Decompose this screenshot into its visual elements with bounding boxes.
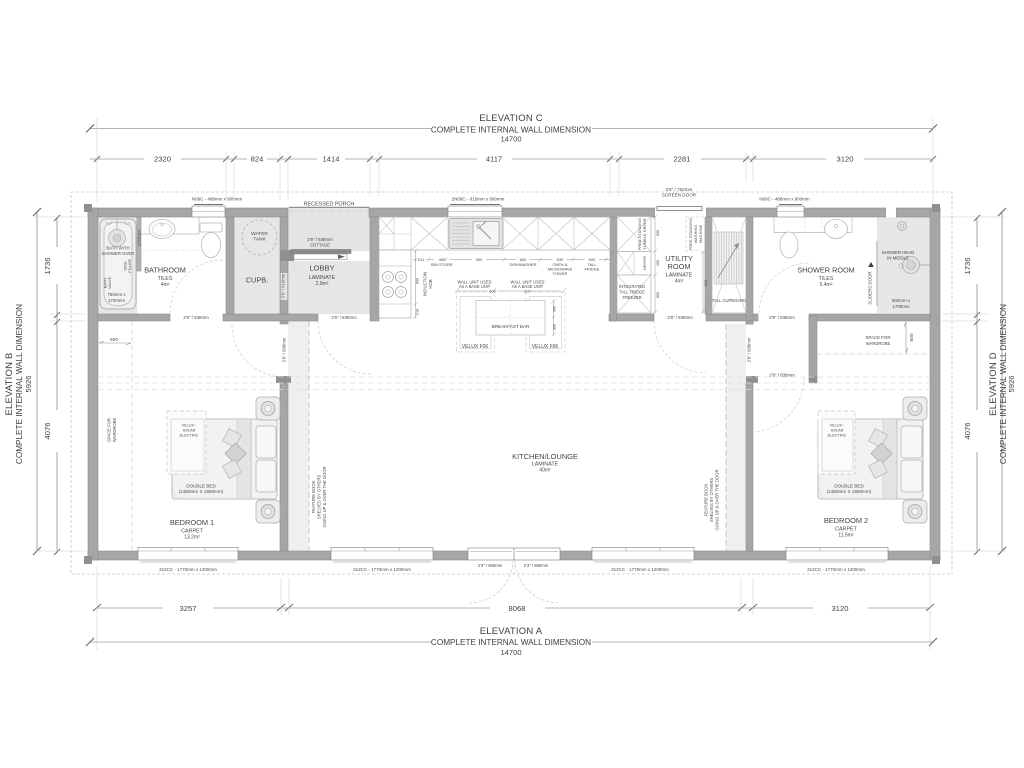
svg-text:2'9" / 838mm: 2'9" / 838mm xyxy=(183,315,209,320)
svg-text:CUPB.: CUPB. xyxy=(246,276,269,285)
svg-text:3120: 3120 xyxy=(837,155,854,164)
svg-text:N09C - 488mm x 900mm: N09C - 488mm x 900mm xyxy=(192,197,243,202)
svg-text:LOBBY: LOBBY xyxy=(309,264,334,273)
svg-text:2'9" / 838mm: 2'9" / 838mm xyxy=(307,237,333,242)
svg-text:COTTAGE: COTTAGE xyxy=(310,243,330,248)
svg-text:3120: 3120 xyxy=(832,604,849,613)
svg-text:FEATURE BOOK: FEATURE BOOK xyxy=(704,484,709,517)
svg-text:GOING UP & OVER THE DOOR: GOING UP & OVER THE DOOR xyxy=(322,466,327,527)
svg-text:8068: 8068 xyxy=(509,604,526,613)
svg-text:400: 400 xyxy=(656,260,660,266)
svg-text:600: 600 xyxy=(110,337,118,343)
svg-text:BEDROOM 1: BEDROOM 1 xyxy=(170,518,214,527)
svg-text:SHOWER ROOM: SHOWER ROOM xyxy=(797,266,855,275)
svg-text:N09C - 488mm x 900mm: N09C - 488mm x 900mm xyxy=(759,197,810,202)
svg-text:WATER: WATER xyxy=(251,231,268,237)
svg-text:VELUX F06: VELUX F06 xyxy=(532,344,559,350)
svg-text:40m²: 40m² xyxy=(539,468,551,474)
svg-text:600: 600 xyxy=(416,278,420,284)
svg-text:11.5m²: 11.5m² xyxy=(838,533,854,539)
svg-text:900mm x: 900mm x xyxy=(892,298,911,303)
svg-text:BREAKFAST BAR: BREAKFAST BAR xyxy=(492,324,530,329)
svg-text:WARDROBE: WARDROBE xyxy=(866,341,891,346)
svg-text:HOB: HOB xyxy=(428,279,433,288)
svg-text:600: 600 xyxy=(489,289,496,294)
svg-text:ELEVATION A: ELEVATION A xyxy=(480,626,543,637)
svg-text:KITCHEN/LOUNGE: KITCHEN/LOUNGE xyxy=(512,452,578,461)
svg-text:COMPLETE INTERNAL WALL DIMENSI: COMPLETE INTERNAL WALL DIMENSION xyxy=(431,126,591,135)
svg-text:TOWER: TOWER xyxy=(553,271,568,276)
svg-text:FILLER: FILLER xyxy=(127,259,132,273)
svg-text:DOUBLE BED: DOUBLE BED xyxy=(834,484,864,489)
svg-text:2'6" / 762mm: 2'6" / 762mm xyxy=(666,187,693,192)
svg-text:ELEVATION D: ELEVATION D xyxy=(988,352,999,416)
svg-text:600: 600 xyxy=(524,289,531,294)
svg-text:4076: 4076 xyxy=(43,423,52,440)
svg-text:5926: 5926 xyxy=(1007,376,1016,393)
svg-text:ELEVATION C: ELEVATION C xyxy=(479,113,543,124)
svg-text:INTEGRATED: INTEGRATED xyxy=(619,284,645,289)
svg-text:ELECTRIC: ELECTRIC xyxy=(828,434,847,438)
svg-text:VALVE: VALVE xyxy=(107,277,112,290)
svg-text:DISHWASHER: DISHWASHER xyxy=(510,262,537,267)
svg-text:2320: 2320 xyxy=(154,155,171,164)
svg-text:900: 900 xyxy=(476,257,483,262)
svg-text:2N09C - 915mm x 900mm: 2N09C - 915mm x 900mm xyxy=(452,197,505,202)
svg-text:COMPLETE INTERNAL WALL DIMENSI: COMPLETE INTERNAL WALL DIMENSION xyxy=(15,304,24,464)
svg-text:750mm x: 750mm x xyxy=(107,292,126,297)
svg-text:SLIDERS DOOR: SLIDERS DOOR xyxy=(868,271,873,304)
svg-text:COMPLETE INTERNAL WALL DIMENSI: COMPLETE INTERNAL WALL DIMENSION xyxy=(431,638,591,647)
svg-text:BATHROOM: BATHROOM xyxy=(144,266,186,275)
svg-text:3257: 3257 xyxy=(180,604,197,613)
svg-text:1414: 1414 xyxy=(323,155,340,164)
svg-text:600: 600 xyxy=(656,292,660,298)
svg-text:SPACE FOR: SPACE FOR xyxy=(107,418,112,442)
svg-text:TUMBLE DRYER: TUMBLE DRYER xyxy=(642,218,647,249)
svg-text:INDUCTION: INDUCTION xyxy=(423,272,428,296)
svg-text:SCREEN DOOR: SCREEN DOOR xyxy=(662,193,697,198)
svg-text:2'9" / 838mm: 2'9" / 838mm xyxy=(747,337,752,362)
svg-text:VELUX -: VELUX - xyxy=(830,424,846,428)
svg-text:1736: 1736 xyxy=(43,258,52,275)
svg-text:GOING UP & OVER THE DOOR: GOING UP & OVER THE DOOR xyxy=(715,469,720,530)
svg-text:FRIDGE: FRIDGE xyxy=(584,267,599,272)
svg-text:1700mm: 1700mm xyxy=(892,304,909,309)
svg-text:600: 600 xyxy=(909,333,915,341)
svg-text:824: 824 xyxy=(251,155,264,164)
svg-text:AS A BASE UNIT: AS A BASE UNIT xyxy=(459,284,491,289)
svg-text:SOLAR: SOLAR xyxy=(831,429,844,433)
svg-text:14700: 14700 xyxy=(500,135,521,144)
svg-text:WARDROBE: WARDROBE xyxy=(112,418,117,443)
svg-text:1736: 1736 xyxy=(963,258,972,275)
svg-text:5926: 5926 xyxy=(24,376,33,393)
svg-text:VELUX F06: VELUX F06 xyxy=(462,344,489,350)
svg-text:1700mm: 1700mm xyxy=(108,298,125,303)
svg-text:312CC - 1770mm x 1200mm: 312CC - 1770mm x 1200mm xyxy=(353,567,411,572)
svg-text:MACHINE: MACHINE xyxy=(698,224,703,243)
svg-text:TALL CUPBOARD: TALL CUPBOARD xyxy=(712,298,746,303)
svg-text:FREEZER: FREEZER xyxy=(622,295,641,300)
svg-text:SOLAR: SOLAR xyxy=(183,429,196,433)
svg-text:218: 218 xyxy=(416,309,420,315)
svg-text:VELUX -: VELUX - xyxy=(182,424,198,428)
svg-text:(1350mm X 1900mm): (1350mm X 1900mm) xyxy=(827,489,872,494)
svg-text:IN MIDDLE: IN MIDDLE xyxy=(887,256,909,261)
svg-text:ELEVATION B: ELEVATION B xyxy=(4,352,15,415)
svg-text:2'3" / 686mm: 2'3" / 686mm xyxy=(478,563,503,568)
svg-text:RECESSED PORCH: RECESSED PORCH xyxy=(304,202,355,208)
svg-text:SCREEN: SCREEN xyxy=(137,230,142,247)
svg-text:BATH WITH: BATH WITH xyxy=(106,246,129,251)
svg-text:2'9" / 838mm: 2'9" / 838mm xyxy=(769,315,795,320)
svg-text:2'9" / 838mm: 2'9" / 838mm xyxy=(282,337,287,362)
svg-text:13.2m²: 13.2m² xyxy=(184,535,200,541)
svg-text:SHOWER HEAD: SHOWER HEAD xyxy=(882,250,914,255)
svg-text:300: 300 xyxy=(553,324,557,330)
svg-text:4117: 4117 xyxy=(486,155,502,164)
svg-text:SHELVES BY OTHERS: SHELVES BY OTHERS xyxy=(317,475,322,520)
svg-text:312CC - 1770mm x 1200mm: 312CC - 1770mm x 1200mm xyxy=(611,567,669,572)
svg-text:(1350mm X 1900mm): (1350mm X 1900mm) xyxy=(179,489,224,494)
svg-text:4076: 4076 xyxy=(963,423,972,440)
svg-text:FEATURE BOOK: FEATURE BOOK xyxy=(311,481,316,514)
svg-text:2'0" / 610mm: 2'0" / 610mm xyxy=(281,273,286,298)
svg-text:DRYER: DRYER xyxy=(642,256,647,270)
svg-text:2'9" / 938mm: 2'9" / 938mm xyxy=(667,315,693,320)
svg-text:4m²: 4m² xyxy=(675,279,684,285)
svg-text:SHOWER OVER: SHOWER OVER xyxy=(102,251,135,256)
svg-text:ELECTRIC: ELECTRIC xyxy=(180,434,199,438)
svg-text:2'9" / 838mm: 2'9" / 838mm xyxy=(769,373,795,378)
svg-text:TANK: TANK xyxy=(253,237,266,243)
svg-text:500: 500 xyxy=(704,280,708,286)
svg-text:DOUBLE BED: DOUBLE BED xyxy=(186,484,216,489)
svg-text:511: 511 xyxy=(418,257,425,262)
svg-text:312CC - 1770mm x 1200mm: 312CC - 1770mm x 1200mm xyxy=(807,567,865,572)
svg-text:2281: 2281 xyxy=(674,155,691,164)
svg-text:5.4m²: 5.4m² xyxy=(820,282,833,288)
svg-text:BIN STORE: BIN STORE xyxy=(431,262,453,267)
svg-text:300: 300 xyxy=(553,306,557,312)
svg-text:SHELVES BY OTHERS: SHELVES BY OTHERS xyxy=(709,478,714,523)
svg-text:2'3" / 686mm: 2'3" / 686mm xyxy=(524,563,549,568)
svg-text:2.9m²: 2.9m² xyxy=(316,281,329,287)
svg-text:312CC - 1770mm x 1200mm: 312CC - 1770mm x 1200mm xyxy=(159,567,217,572)
svg-text:ROOM: ROOM xyxy=(668,262,691,271)
svg-text:14700: 14700 xyxy=(500,648,521,657)
svg-text:TALL FRIDGE: TALL FRIDGE xyxy=(619,290,645,295)
svg-text:2'9" / 838mm: 2'9" / 838mm xyxy=(331,315,357,320)
svg-text:4m²: 4m² xyxy=(161,282,170,288)
svg-text:600: 600 xyxy=(656,230,660,236)
svg-text:SPACE FOR: SPACE FOR xyxy=(865,335,890,340)
svg-text:BEDROOM 2: BEDROOM 2 xyxy=(824,516,868,525)
